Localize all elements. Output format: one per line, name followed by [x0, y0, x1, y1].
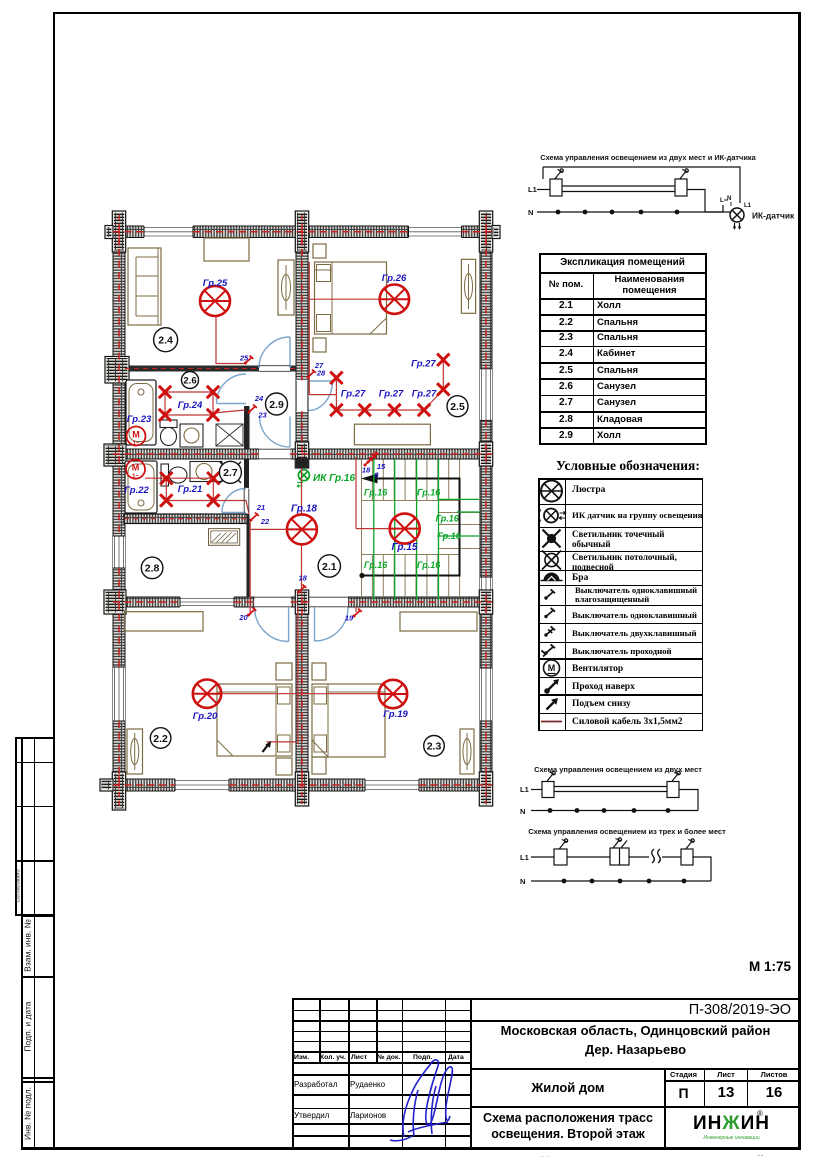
svg-text:Гр.20: Гр.20	[193, 711, 218, 722]
svg-text:Схема управления освещением из: Схема управления освещением из двух мест…	[540, 153, 756, 162]
svg-text:Гр.26: Гр.26	[382, 273, 407, 284]
svg-text:N: N	[520, 807, 525, 816]
svg-text:Гр.16: Гр.16	[417, 488, 441, 498]
svg-text:Инв. № подл.: Инв. № подл.	[23, 1087, 33, 1140]
svg-text:2.8: 2.8	[145, 563, 160, 575]
svg-text:Гр.15: Гр.15	[392, 542, 418, 553]
svg-text:Гр.23: Гр.23	[127, 414, 152, 425]
svg-text:22: 22	[260, 517, 270, 526]
svg-text:24: 24	[254, 394, 264, 403]
svg-text:L: L	[720, 198, 724, 204]
svg-text:L1: L1	[744, 203, 752, 209]
svg-text:Гр.16: Гр.16	[364, 560, 388, 570]
svg-text:Подп. и дата: Подп. и дата	[23, 1001, 33, 1051]
svg-text:20: 20	[238, 613, 248, 622]
svg-text:Гр.27: Гр.27	[412, 389, 437, 400]
svg-text:18: 18	[299, 574, 308, 583]
svg-text:2.4: 2.4	[158, 335, 173, 347]
svg-text:Гр.18: Гр.18	[291, 504, 317, 515]
svg-text:2.5: 2.5	[450, 401, 465, 413]
svg-text:Гр.16: Гр.16	[436, 514, 460, 524]
svg-text:2.7: 2.7	[223, 467, 238, 479]
svg-text:Гр.19: Гр.19	[383, 709, 408, 720]
svg-text:2.1: 2.1	[322, 561, 337, 573]
svg-text:25: 25	[239, 354, 249, 363]
svg-text:Гр.27: Гр.27	[341, 389, 366, 400]
svg-text:L1: L1	[520, 853, 529, 862]
svg-text:N: N	[528, 208, 533, 217]
svg-text:L1: L1	[520, 785, 529, 794]
svg-text:N: N	[520, 877, 525, 886]
svg-text:Гр.21: Гр.21	[178, 484, 203, 495]
svg-text:Схема управления освещением из: Схема управления освещением из трех и бо…	[528, 827, 726, 836]
svg-text:Гр.25: Гр.25	[203, 278, 228, 289]
svg-text:21: 21	[256, 503, 265, 512]
svg-text:2.6: 2.6	[183, 375, 196, 386]
svg-text:1~: 1~	[132, 474, 139, 480]
svg-text:М: М	[132, 463, 140, 473]
svg-text:Гр.22: Гр.22	[124, 485, 149, 496]
svg-text:Гр.27: Гр.27	[411, 359, 436, 370]
svg-text:ИК Гр.16: ИК Гр.16	[313, 473, 355, 484]
svg-text:2.3: 2.3	[427, 741, 442, 753]
svg-text:Гр.16: Гр.16	[417, 560, 441, 570]
svg-text:ИК-датчик: ИК-датчик	[752, 211, 795, 221]
svg-text:2.2: 2.2	[153, 733, 168, 745]
svg-text:Гр.27: Гр.27	[379, 389, 404, 400]
svg-text:М: М	[132, 430, 140, 440]
svg-text:19: 19	[345, 614, 354, 623]
svg-text:2.9: 2.9	[269, 399, 284, 411]
svg-text:L1: L1	[528, 185, 537, 194]
svg-text:Гр.24: Гр.24	[178, 400, 203, 411]
svg-text:Гр.16: Гр.16	[438, 531, 462, 541]
svg-text:Гр.16: Гр.16	[364, 488, 388, 498]
svg-text:1~: 1~	[133, 441, 140, 447]
svg-text:23: 23	[257, 411, 267, 420]
svg-text:28: 28	[316, 369, 326, 378]
svg-text:М: М	[548, 663, 556, 673]
svg-text:18: 18	[362, 466, 371, 475]
svg-text:Взам. инв. №: Взам. инв. №	[23, 919, 33, 972]
svg-text:Согласовано: Согласовано	[16, 869, 22, 902]
svg-text:N: N	[727, 196, 731, 202]
